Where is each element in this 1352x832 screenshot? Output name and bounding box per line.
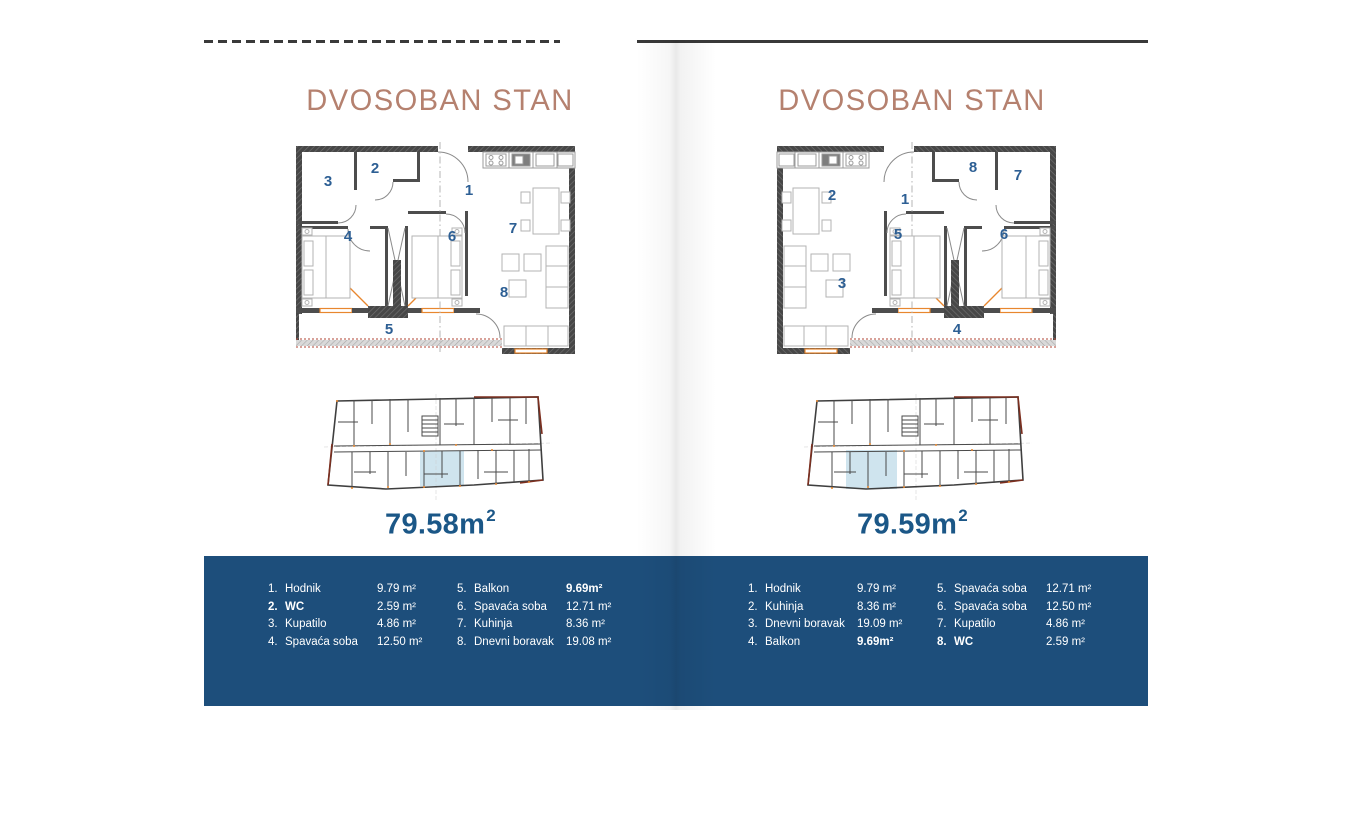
legend-area-value: 8.36 m² [566,618,638,631]
legend-item: 4.Balkon9.69m² [748,636,929,649]
legend-area-value: 8.36 m² [857,601,929,614]
legend-area-value: 9.69m² [857,636,929,649]
legend-room-name: WC [285,601,377,614]
room-number: 6 [448,228,456,245]
room-number: 7 [1014,167,1022,184]
legend-room-number: 5. [457,583,474,596]
legend-item: 3.Dnevni boravak19.09 m² [748,618,929,631]
area-superscript: 2 [958,506,968,525]
legend-item: 7.Kupatilo4.86 m² [937,618,1118,631]
legend-room-number: 2. [748,601,765,614]
site-plan [804,394,1032,500]
legend-band: 1.Hodnik9.79 m²2.WC2.59 m²3.Kupatilo4.86… [204,556,1148,706]
legend-room-name: Kuhinja [765,601,857,614]
room-number: 3 [324,173,332,190]
legend-room-name: Dnevni boravak [765,618,857,631]
legend-area-value: 4.86 m² [1046,618,1118,631]
legend-item: 2.Kuhinja8.36 m² [748,601,929,614]
legend-item: 6.Spavaća soba12.50 m² [937,601,1118,614]
legend-column: 1.Hodnik9.79 m²2.Kuhinja8.36 m²3.Dnevni … [748,583,929,653]
room-number: 1 [465,182,473,199]
legend-item: 6.Spavaća soba12.71 m² [457,601,638,614]
legend-item: 8.Dnevni boravak19.08 m² [457,636,638,649]
legend-room-number: 5. [937,583,954,596]
legend-area-value: 12.71 m² [566,601,638,614]
legend-item: 5.Balkon9.69m² [457,583,638,596]
legend-room-number: 7. [457,618,474,631]
legend-room-name: WC [954,636,1046,649]
legend-room-name: Kupatilo [954,618,1046,631]
legend-item: 1.Hodnik9.79 m² [268,583,449,596]
page-title: DVOSOBAN STAN [211,84,669,118]
legend-room-name: Balkon [765,636,857,649]
area-unit: m [931,509,957,541]
legend-area-value: 2.59 m² [377,601,449,614]
legend-room-name: Spavaća soba [285,636,377,649]
room-number: 8 [969,159,977,176]
room-number: 7 [509,220,517,237]
legend-column: 5.Spavaća soba12.71 m²6.Spavaća soba12.5… [937,583,1118,653]
legend-area-value: 19.09 m² [857,618,929,631]
room-number: 3 [838,275,846,292]
room-number: 4 [344,228,353,245]
room-number: 2 [371,160,379,177]
legend-room-number: 2. [268,601,285,614]
legend-room-number: 8. [937,636,954,649]
legend-area-value: 12.71 m² [1046,583,1118,596]
legend-column: 1.Hodnik9.79 m²2.WC2.59 m²3.Kupatilo4.86… [268,583,449,653]
legend-item: 2.WC2.59 m² [268,601,449,614]
area-value: 79.59 [857,509,931,541]
legend-room-number: 4. [748,636,765,649]
area-label: 79.59m2 [676,508,1148,542]
legend-room-name: Kuhinja [474,618,566,631]
site-plan-highlight [846,450,897,489]
area-superscript: 2 [486,506,496,525]
page-title: DVOSOBAN STAN [683,84,1141,118]
legend-area-value: 4.86 m² [377,618,449,631]
legend-room-number: 4. [268,636,285,649]
legend-area-value: 9.79 m² [857,583,929,596]
legend-area-value: 12.50 m² [377,636,449,649]
legend-room-name: Spavaća soba [474,601,566,614]
legend-room-number: 1. [268,583,285,596]
legend-area-value: 12.50 m² [1046,601,1118,614]
legend-item: 8.WC2.59 m² [937,636,1118,649]
legend-room-name: Kupatilo [285,618,377,631]
legend-right-page: 1.Hodnik9.79 m²2.Kuhinja8.36 m²3.Dnevni … [748,583,1118,653]
area-label: 79.58m2 [204,508,676,542]
legend-area-value: 9.69m² [566,583,638,596]
room-number: 1 [901,191,909,208]
legend-room-number: 3. [268,618,285,631]
brochure-spread: DVOSOBAN STAN 12345678 79.58m2 DVOSOBAN … [204,40,1148,710]
room-number: 4 [953,321,962,338]
legend-room-name: Hodnik [285,583,377,596]
room-number: 2 [828,187,836,204]
site-plan [324,394,552,500]
room-number: 5 [385,321,393,338]
floor-plan: 12345678 [290,142,590,357]
room-number: 6 [1000,226,1008,243]
legend-room-name: Balkon [474,583,566,596]
legend-item: 1.Hodnik9.79 m² [748,583,929,596]
legend-item: 7.Kuhinja8.36 m² [457,618,638,631]
legend-room-number: 7. [937,618,954,631]
legend-room-name: Dnevni boravak [474,636,566,649]
legend-area-value: 2.59 m² [1046,636,1118,649]
legend-room-number: 6. [457,601,474,614]
legend-room-name: Spavaća soba [954,583,1046,596]
room-number: 5 [894,226,902,243]
legend-item: 5.Spavaća soba12.71 m² [937,583,1118,596]
room-number: 8 [500,284,508,301]
legend-item: 4.Spavaća soba12.50 m² [268,636,449,649]
legend-area-value: 9.79 m² [377,583,449,596]
legend-room-name: Spavaća soba [954,601,1046,614]
floor-plan: 12345678 [762,142,1062,357]
legend-room-number: 1. [748,583,765,596]
area-value: 79.58 [385,509,459,541]
legend-left-page: 1.Hodnik9.79 m²2.WC2.59 m²3.Kupatilo4.86… [268,583,638,653]
legend-room-number: 6. [937,601,954,614]
legend-room-name: Hodnik [765,583,857,596]
legend-room-number: 8. [457,636,474,649]
legend-room-number: 3. [748,618,765,631]
legend-item: 3.Kupatilo4.86 m² [268,618,449,631]
area-unit: m [459,509,485,541]
legend-area-value: 19.08 m² [566,636,638,649]
legend-column: 5.Balkon9.69m²6.Spavaća soba12.71 m²7.Ku… [457,583,638,653]
